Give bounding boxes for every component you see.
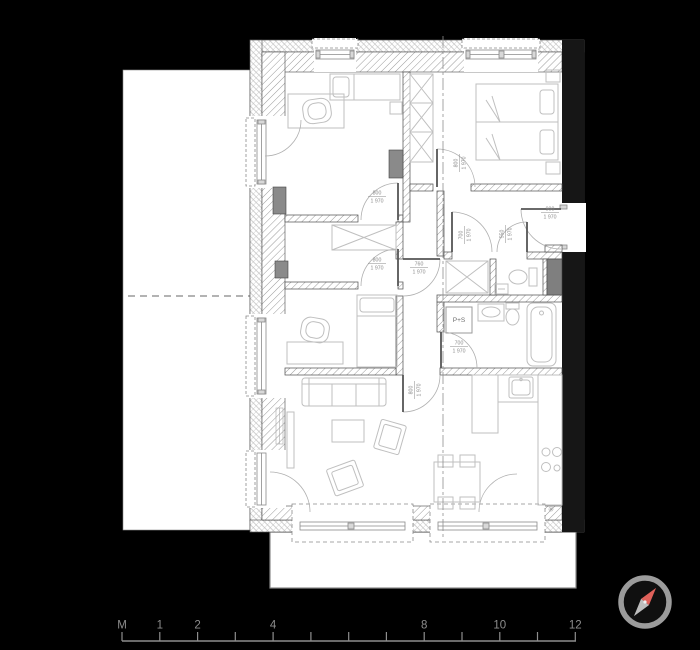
svg-text:760: 760: [415, 262, 424, 268]
radiator-niche: [389, 150, 403, 178]
scale-tick-label: 12: [569, 620, 582, 632]
svg-text:800: 800: [373, 258, 382, 264]
entrance-opening: [560, 203, 586, 252]
svg-text:800: 800: [454, 159, 460, 168]
radiator-bedroom1: [273, 187, 286, 214]
radiator-closet: [275, 261, 288, 278]
svg-text:1 970: 1 970: [508, 227, 514, 240]
svg-text:700: 700: [459, 231, 465, 240]
scale-tick-label: M: [117, 620, 127, 632]
scale-tick-label: 1: [157, 620, 163, 632]
window-top-2: [462, 38, 540, 72]
svg-text:550: 550: [500, 230, 506, 239]
freezer-symbol: ✳: [548, 505, 555, 514]
svg-text:800: 800: [409, 386, 415, 395]
terrace-outline: [123, 70, 255, 530]
scale-tick-label: 8: [421, 620, 427, 632]
svg-text:1 970: 1 970: [371, 266, 384, 272]
svg-text:1 970: 1 970: [453, 349, 466, 355]
svg-text:1 970: 1 970: [544, 215, 557, 221]
scale-tick-label: 4: [270, 620, 277, 632]
floor-plan-canvas: P+S ✳ 8001 9708001 9709001 9707601 97070…: [0, 0, 700, 650]
svg-text:1 970: 1 970: [462, 156, 468, 169]
party-wall-right: [562, 40, 584, 532]
window-left-3: [246, 450, 286, 508]
svg-text:1 970: 1 970: [413, 270, 426, 276]
scale-tick-label: 2: [194, 620, 200, 632]
washer-dryer-label: P+S: [453, 317, 466, 324]
compass-icon: [621, 578, 669, 626]
window-top-1: [312, 38, 358, 72]
french-window-bottom-2: [430, 504, 545, 542]
svg-text:1 970: 1 970: [467, 228, 473, 241]
scale-tick-label: 10: [493, 620, 506, 632]
window-left-1: [246, 116, 286, 188]
svg-text:1 970: 1 970: [371, 199, 384, 205]
svg-text:900: 900: [546, 207, 555, 213]
svg-text:800: 800: [373, 191, 382, 197]
window-left-2: [246, 314, 286, 398]
svg-text:700: 700: [455, 341, 464, 347]
installation-shaft: [547, 259, 562, 295]
svg-text:1 970: 1 970: [417, 383, 423, 396]
insulation-left: [250, 40, 262, 521]
